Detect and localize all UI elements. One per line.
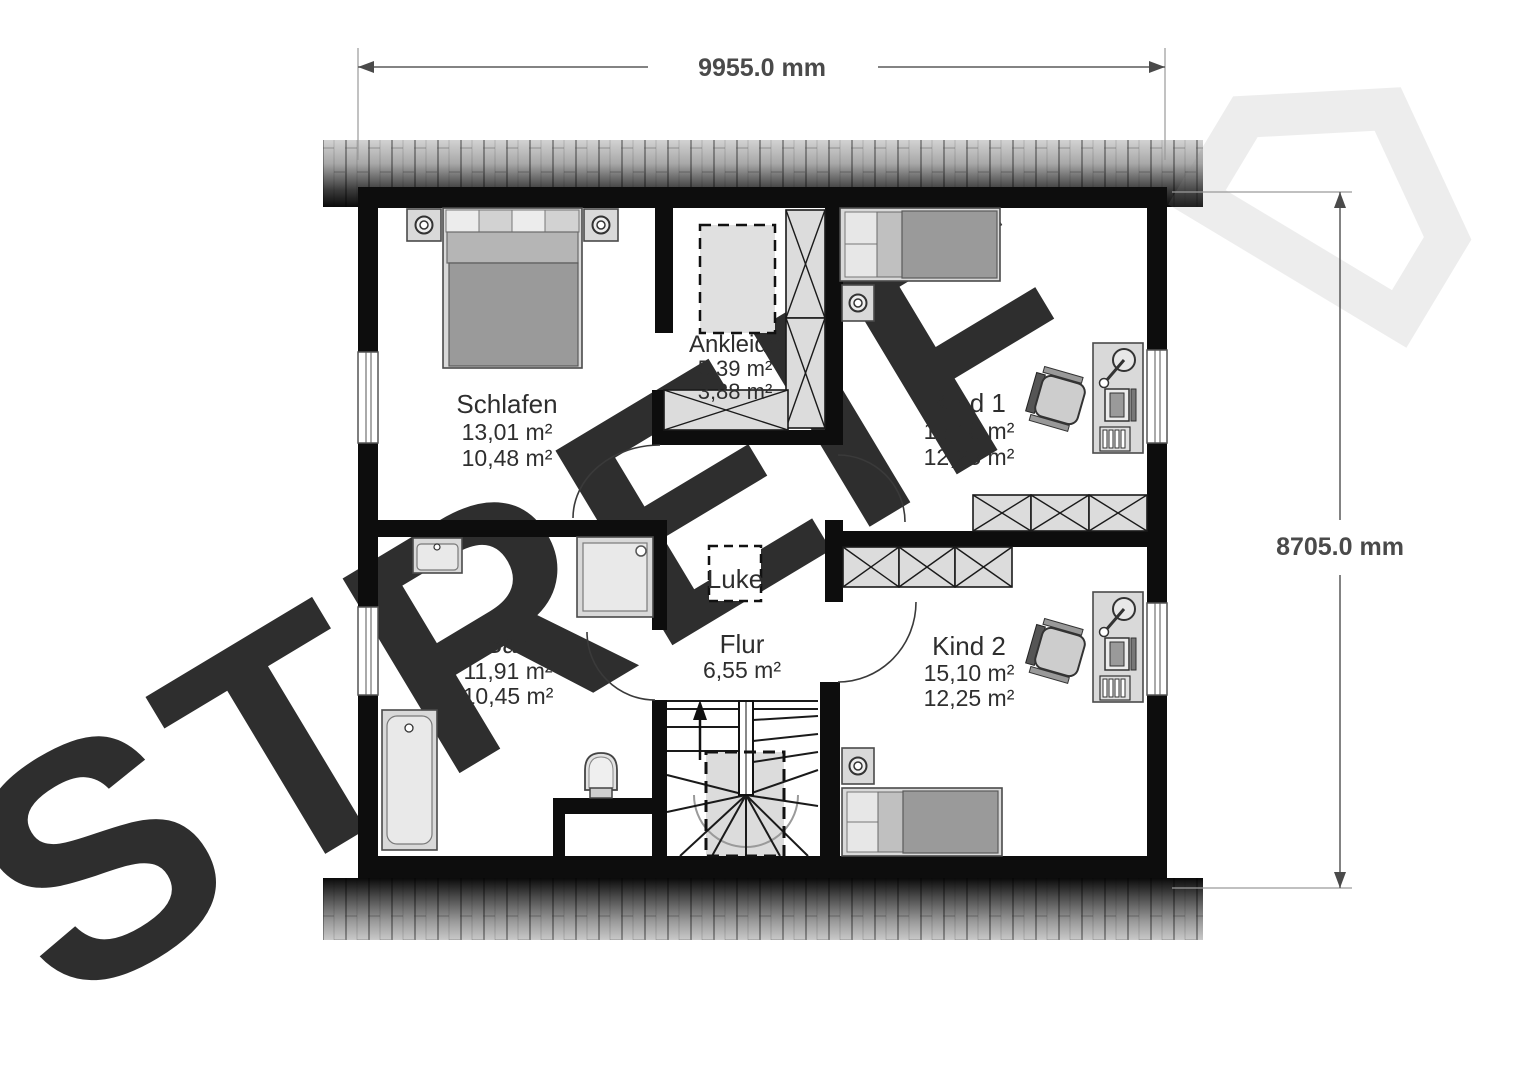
room-name: Flur xyxy=(720,629,765,659)
wall-left-mid xyxy=(358,443,378,607)
keyboard-icon xyxy=(1100,427,1130,451)
sink xyxy=(413,538,462,573)
room-area-living: 12,25 m² xyxy=(924,444,1015,470)
double-bed xyxy=(443,208,582,368)
room-name: Schlafen xyxy=(456,389,557,419)
luke-label: Luke xyxy=(707,564,763,594)
wall-top xyxy=(358,187,1167,208)
room-schlafen-label: Schlafen 13,01 m² 10,48 m² xyxy=(456,389,557,471)
luke-hatch: Luke xyxy=(707,546,763,601)
window-kind1 xyxy=(1147,350,1167,443)
room-ankleide-label: Ankleide 5,39 m² 3,88 m² xyxy=(689,331,781,404)
wall-bad-stairs xyxy=(652,700,667,856)
room-area-living: 12,25 m² xyxy=(924,685,1015,711)
nightstand-kind1 xyxy=(842,285,874,321)
room-name: Bad xyxy=(485,629,531,659)
shower xyxy=(577,537,653,617)
floorplan-drawing: STREIF xyxy=(0,0,1526,1080)
room-name: Kind 1 xyxy=(932,388,1006,418)
room-area-total: 11,91 m² xyxy=(463,658,552,684)
room-area-living: 10,48 m² xyxy=(462,445,553,471)
room-area-living: 3,88 m² xyxy=(698,379,773,404)
window-kind2 xyxy=(1147,603,1167,695)
single-bed-kind1 xyxy=(840,208,1000,281)
toilet xyxy=(585,753,617,798)
room-area-total: 6,55 m² xyxy=(703,657,781,683)
wall-flur-north xyxy=(652,430,842,445)
room-name: Ankleide xyxy=(689,331,781,358)
wall-left-lower xyxy=(358,695,378,878)
desk-kind1 xyxy=(1093,343,1143,453)
wall-bad-flur xyxy=(652,537,667,630)
room-area-total: 15,10 m² xyxy=(924,660,1015,686)
nightstand-schlafen-right xyxy=(584,209,618,241)
room-area-total: 13,01 m² xyxy=(462,419,553,445)
wall-right-upper xyxy=(1147,187,1167,350)
wall-right-mid xyxy=(1147,443,1167,603)
wall-kind1-kind2 xyxy=(825,531,1147,547)
ankleide-clearance-dashed xyxy=(700,225,775,333)
room-area-total: 5,39 m² xyxy=(698,356,773,381)
desk-kind2 xyxy=(1093,592,1143,702)
room-name: Kind 2 xyxy=(932,631,1006,661)
wall-schlafen-ankleide xyxy=(655,208,673,333)
wall-kind2-west-lower xyxy=(820,682,840,856)
room-kind1-label: Kind 1 15,10 m² 12,25 m² xyxy=(924,388,1015,470)
wardrobe-kind1 xyxy=(973,495,1147,531)
wall-schlafen-bad xyxy=(378,520,667,537)
room-area-total: 15,10 m² xyxy=(924,418,1015,444)
floorplan-page: STREIF xyxy=(0,0,1526,1080)
single-bed-kind2 xyxy=(842,788,1002,856)
keyboard-icon xyxy=(1100,676,1130,700)
wardrobe-kind2 xyxy=(843,547,1012,587)
nightstand-schlafen-left xyxy=(407,209,441,241)
wall-bad-step-v xyxy=(553,812,565,856)
wardrobe-ankleide-column xyxy=(786,210,825,428)
dimension-top-value: 9955.0 mm xyxy=(698,54,826,82)
window-bad xyxy=(358,607,378,695)
dimension-right-value: 8705.0 mm xyxy=(1276,533,1404,561)
room-kind2-label: Kind 2 15,10 m² 12,25 m² xyxy=(924,631,1015,711)
bathtub xyxy=(382,710,437,850)
wall-bad-step-h xyxy=(553,798,667,814)
room-area-living: 10,45 m² xyxy=(463,683,554,709)
wall-left-upper xyxy=(358,187,378,352)
wall-right-lower xyxy=(1147,695,1167,878)
window-schlafen xyxy=(358,352,378,443)
roof-overhang-bottom xyxy=(323,878,1203,940)
wall-bottom xyxy=(358,856,1167,878)
wall-kind2-west-upper xyxy=(825,547,843,602)
nightstand-kind2 xyxy=(842,748,874,784)
